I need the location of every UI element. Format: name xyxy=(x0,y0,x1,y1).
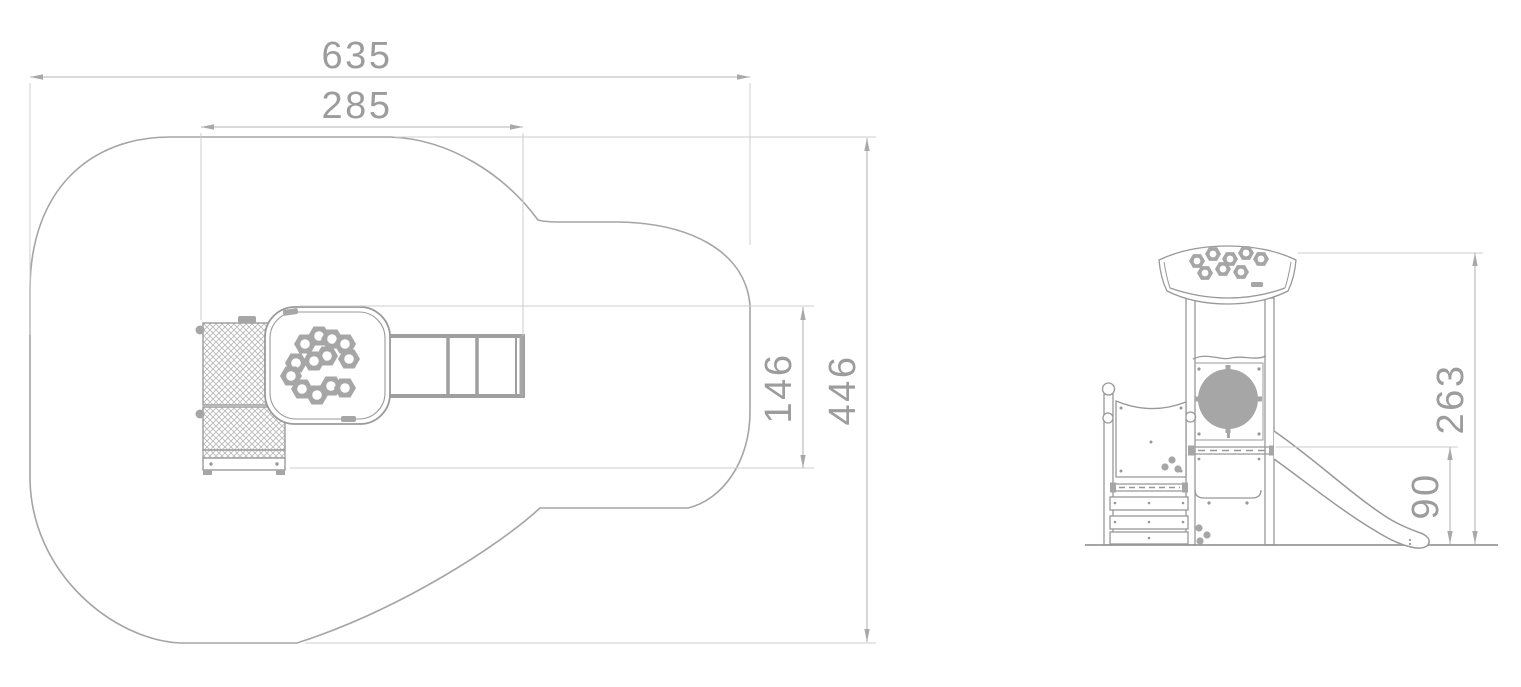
dim-label-total-height: 263 xyxy=(1430,364,1472,435)
dim-label-equipment-width: 285 xyxy=(322,85,393,127)
net-post-knob xyxy=(196,410,205,419)
tower-lower-panel xyxy=(1195,458,1261,545)
net-top-tab xyxy=(238,316,256,323)
net-foot-left xyxy=(203,470,212,475)
porthole-panel xyxy=(1193,356,1266,440)
tower-platform-plan xyxy=(265,307,390,424)
post-ball-cap xyxy=(1186,412,1196,422)
stair-steps xyxy=(1110,497,1188,544)
net-post-knob xyxy=(196,326,205,335)
net-foot-right xyxy=(276,470,285,475)
platform-tab xyxy=(341,416,356,422)
porthole-window xyxy=(1198,369,1258,429)
technical-drawing-page: 635 285 146 446 263 90 xyxy=(0,0,1521,687)
dim-label-equipment-depth: 146 xyxy=(758,353,800,424)
post-ball-cap xyxy=(1103,413,1113,423)
climbing-dots xyxy=(1195,524,1210,544)
plan-view xyxy=(30,137,750,643)
dim-label-total-depth: 446 xyxy=(822,355,864,426)
slide-plan xyxy=(388,335,524,397)
tower-right-post xyxy=(1265,298,1274,545)
playground-dimension-drawing: 635 285 146 446 263 90 xyxy=(0,0,1521,687)
dim-label-total-width: 635 xyxy=(322,35,393,77)
dim-label-platform-height: 90 xyxy=(1405,472,1447,519)
stair-rail xyxy=(1110,483,1188,493)
stair-panel xyxy=(1116,401,1186,477)
tower-roof xyxy=(1159,246,1296,304)
post-ball-cap xyxy=(1103,383,1115,395)
roof-tab xyxy=(1251,282,1263,287)
slide-end-cap-plan xyxy=(520,335,524,397)
tower-mid-rail xyxy=(1188,446,1276,456)
